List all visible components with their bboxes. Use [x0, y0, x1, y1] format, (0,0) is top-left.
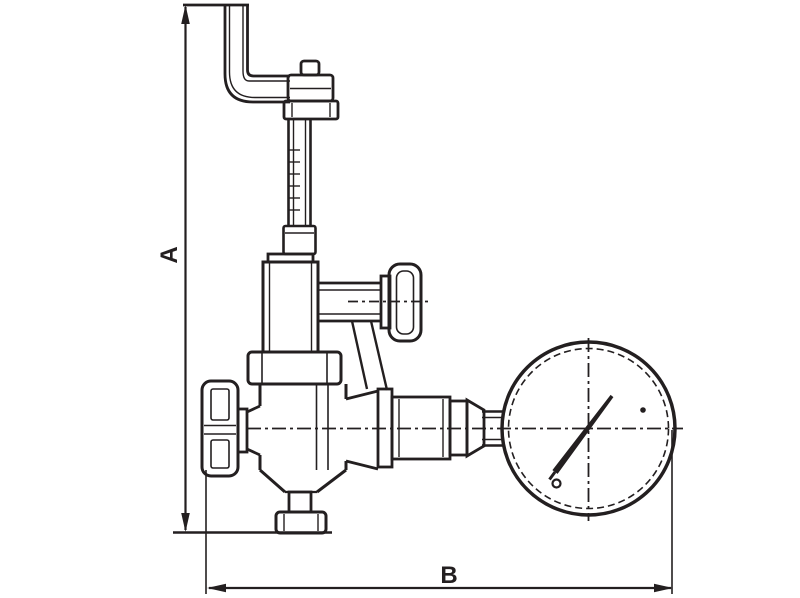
inlet-boss-bottom [247, 449, 260, 455]
cone-right [317, 470, 346, 492]
t-handle-outer [389, 264, 421, 341]
dimension-a-arrow-up-icon [181, 5, 190, 24]
dimension-a-label: A [156, 246, 183, 263]
elbow-inner-wall [248, 5, 291, 76]
t-handle-inner [397, 271, 414, 334]
outlet-boss-top [346, 391, 378, 399]
tube-thread-marks [289, 150, 300, 210]
elbow-outer-wall [225, 5, 290, 102]
gauge-needle-tail [550, 472, 556, 480]
technical-drawing-canvas: A B [0, 0, 800, 598]
dimension-b-label: B [440, 562, 457, 589]
valve-body [247, 384, 378, 492]
support-strut-right [371, 321, 387, 390]
exhaust-pipe-elbow [225, 5, 290, 102]
bottom-outlet [173, 492, 332, 533]
gauge-counterweight [553, 480, 561, 488]
outlet-boss-bottom [346, 461, 378, 469]
outlet-neck [289, 492, 311, 512]
inlet-boss-top [247, 406, 260, 412]
tube-sleeve [284, 226, 316, 254]
gauge-needle [552, 395, 613, 474]
dimension-b-arrow-right-icon [654, 584, 673, 593]
spring-chamber [263, 254, 318, 352]
handwheel-outer [202, 381, 238, 476]
adjusting-tube [284, 119, 316, 254]
pressure-gauge [502, 338, 675, 521]
chamber-outer [263, 262, 318, 352]
cap-knob [301, 61, 319, 75]
handwheel-panel-top [211, 389, 229, 420]
inlet-handwheel [202, 381, 247, 476]
dimension-b-arrow-left-icon [207, 584, 226, 593]
support-strut-left [352, 321, 367, 389]
elbow-bore-line-inner [243, 5, 290, 81]
bonnet-flange [248, 352, 341, 384]
handwheel-panel-bottom [211, 440, 229, 468]
top-cap-fitting [284, 61, 338, 119]
dimension-b: B [206, 430, 673, 594]
elbow-bore-line-outer [230, 5, 291, 98]
dimension-a-arrow-down-icon [181, 513, 190, 532]
gauge-dial-dot [640, 407, 646, 413]
cone-left [260, 470, 285, 492]
valve-with-gauge-technical-drawing: A B [0, 0, 800, 598]
side-port-assembly [318, 264, 431, 390]
